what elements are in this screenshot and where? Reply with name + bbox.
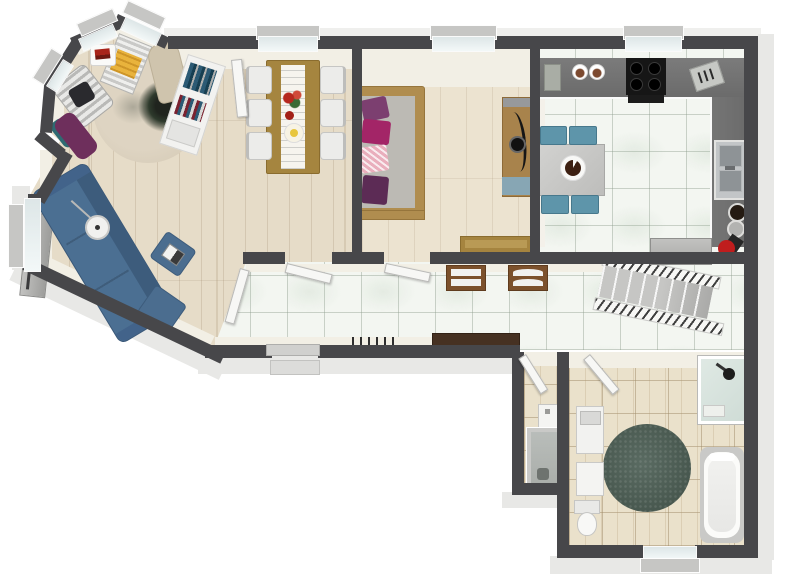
food-bowl <box>589 64 605 80</box>
wall-hall-top-2 <box>332 252 384 264</box>
sink-basin <box>719 145 742 167</box>
cooktop-front <box>628 95 664 103</box>
wall-dining-bedroom <box>352 49 362 264</box>
dining-chair <box>246 99 272 127</box>
vanity-basin <box>580 411 601 425</box>
desk-top <box>465 240 527 248</box>
shower-head <box>723 368 735 380</box>
knife <box>709 68 714 79</box>
shoe-shelf <box>451 269 481 276</box>
pink-pattern-pillow <box>358 144 389 174</box>
wardrobe-knob <box>509 136 526 153</box>
flower-bouquet <box>282 89 304 109</box>
vanity-sink <box>576 406 604 454</box>
wallface-bedroom <box>362 49 530 87</box>
dining-chair <box>320 66 346 94</box>
dining-table <box>266 60 320 174</box>
wall-bath-bottom-1 <box>557 545 643 558</box>
wall-wc-left <box>512 352 524 495</box>
green-round-rug <box>603 424 691 512</box>
tub-basin <box>708 458 736 532</box>
red-rose <box>285 111 294 120</box>
shoe-shelf <box>451 279 481 286</box>
bathtub <box>700 447 744 543</box>
cooktop <box>626 58 666 95</box>
footboard <box>353 210 425 220</box>
brown-plate <box>560 155 586 181</box>
dining-chair <box>246 66 272 94</box>
window-dining <box>258 36 318 52</box>
apron-corridor-bottom <box>198 356 524 374</box>
fruit-plate <box>284 123 304 143</box>
corner-shower <box>698 356 749 424</box>
dark-purple-pillow <box>361 175 389 205</box>
lamp-center <box>95 225 100 230</box>
window-sill-living <box>8 204 24 268</box>
kitchen-chair <box>569 126 597 145</box>
dining-chair <box>320 99 346 127</box>
wc-faucet <box>545 409 550 414</box>
shower-mat <box>537 468 549 480</box>
books-row-1 <box>183 62 218 95</box>
laptop <box>161 243 185 266</box>
kitchen-chair <box>540 126 567 145</box>
shower-tray <box>703 405 725 417</box>
knife <box>698 72 703 83</box>
food-bowl <box>572 64 588 80</box>
cutting-board <box>544 64 561 91</box>
toilet-bowl <box>577 512 597 536</box>
magenta-pillow <box>361 119 391 146</box>
wall-hall-top-3 <box>430 252 744 264</box>
burner <box>648 78 661 91</box>
window-living <box>24 198 41 272</box>
brown-food <box>565 160 581 176</box>
window-bedroom <box>432 36 495 52</box>
window-kitchen <box>625 36 682 52</box>
shoe-shelf <box>513 279 543 286</box>
faucet <box>725 166 735 170</box>
sink-basin <box>719 170 742 192</box>
wall-hall-bottom-2 <box>318 345 520 358</box>
burner <box>630 78 643 91</box>
burner <box>630 62 643 75</box>
wall-right <box>744 36 758 558</box>
fruit <box>290 129 298 137</box>
floor-plan <box>0 0 791 579</box>
apron-right <box>758 34 774 560</box>
wall-wc-bath-divider <box>557 352 569 545</box>
shoe-rack-2 <box>508 265 548 291</box>
double-sink <box>714 140 748 200</box>
burner <box>648 62 661 75</box>
kitchen-chair <box>571 195 599 214</box>
tub-headrest <box>709 453 735 461</box>
red-books <box>95 48 111 60</box>
shelf-board <box>166 119 201 147</box>
wardrobe-base <box>502 177 530 195</box>
knife <box>703 70 708 81</box>
window-sill-bathroom <box>640 558 700 573</box>
books-row-2 <box>174 95 207 123</box>
wall-bedroom-kitchen <box>530 49 540 264</box>
white-cabinet <box>576 462 604 496</box>
dark-pillow <box>67 80 96 108</box>
dining-chair <box>320 132 346 160</box>
shoe-shelf <box>513 269 543 276</box>
shoe-rack-1 <box>446 265 486 291</box>
front-door-step <box>270 360 320 375</box>
floor-lamp <box>85 215 110 240</box>
wardrobe-top <box>503 98 531 107</box>
front-door <box>266 344 320 356</box>
kitchen-chair <box>541 195 569 214</box>
wall-hall-top-1 <box>243 252 285 264</box>
dining-chair <box>246 132 272 160</box>
wall-bath-bottom-2 <box>695 545 758 558</box>
